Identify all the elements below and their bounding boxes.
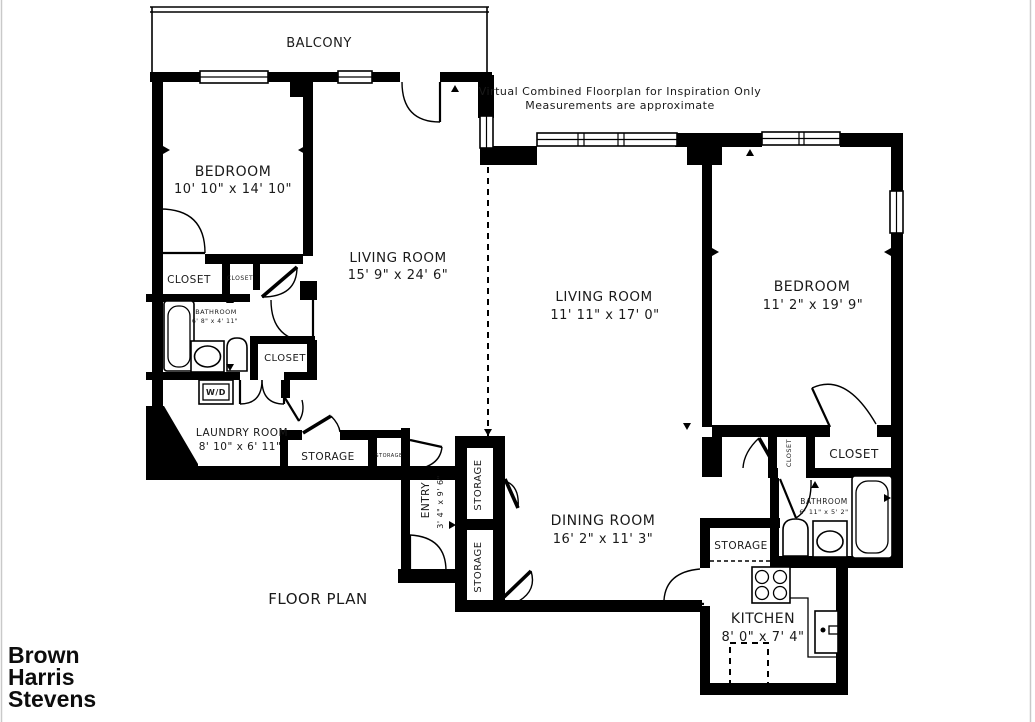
bedroom-left-door — [160, 209, 205, 253]
closet-bedroom-right-small-label: CLOSET — [785, 439, 793, 467]
bathtub-right-icon — [852, 476, 892, 558]
bedroom-right-label: BEDROOM — [774, 279, 851, 295]
laundry-double-door — [240, 380, 284, 404]
bathroom-right-label: BATHROOM — [800, 497, 847, 506]
vestibule-door — [262, 267, 297, 297]
bathroom-left-label: BATHROOM — [195, 308, 237, 316]
bathroom-left-dims: 6' 8" x 4' 11" — [192, 318, 238, 325]
storage-laundry-door — [303, 416, 340, 433]
stove-icon — [752, 567, 790, 603]
disclaimer-line2: Measurements are approximate — [525, 99, 715, 112]
window-living-left — [480, 116, 493, 148]
entry-dims: 3' 4" x 9' 6" — [436, 475, 445, 529]
window-living-right-band — [537, 133, 677, 146]
bedroom-right-dims: 11' 2" x 19' 9" — [763, 298, 863, 313]
floorplan-drawing: BALCONY Virtual Combined Floorplan for I… — [0, 0, 1035, 722]
disclaimer-line1: Virtual Combined Floorplan for Inspirati… — [479, 85, 762, 98]
window-balcony-door-side — [338, 71, 372, 83]
fridge-icon — [815, 611, 839, 653]
balcony-door — [402, 82, 440, 122]
window-bedroom-right-side — [890, 191, 903, 233]
closet-bedroom-right-door — [812, 384, 876, 427]
bathtub-left-icon — [164, 301, 194, 371]
window-bedroom-left — [200, 71, 268, 83]
closet-bedroom-right-big-label: CLOSET — [829, 447, 879, 461]
floorplan-page: BALCONY Virtual Combined Floorplan for I… — [0, 0, 1035, 722]
sink-right-icon — [783, 519, 808, 556]
storage-laundry-small-label: STORAGE — [375, 453, 402, 459]
floor-plan-title: FLOOR PLAN — [268, 590, 367, 608]
laundry-room-label: LAUNDRY ROOM — [196, 427, 288, 439]
kitchen-door — [664, 569, 704, 604]
wd-label: W/D — [206, 388, 226, 397]
living-room-right-label: LIVING ROOM — [555, 289, 652, 305]
toilet-left-icon — [191, 341, 224, 372]
storage-hall-bottom-label: STORAGE — [473, 541, 484, 592]
closet-bedroom-left-big-label: CLOSET — [167, 274, 211, 286]
toilet-right-icon — [813, 521, 847, 557]
storage-hall-top-label: STORAGE — [473, 459, 484, 510]
kitchen-dims: 8' 0" x 7' 4" — [722, 630, 805, 645]
storage-hall-bottom-door — [504, 571, 533, 601]
kitchen-label: KITCHEN — [731, 611, 795, 627]
living-room-left-dims: 15' 9" x 24' 6" — [348, 268, 448, 283]
storage-laundry-label: STORAGE — [301, 451, 354, 463]
laundry-room-dims: 8' 10" x 6' 11" — [199, 441, 282, 453]
window-bedroom-right-top — [762, 132, 840, 145]
dining-room-label: DINING ROOM — [551, 513, 656, 529]
storage-hall-top-door — [505, 479, 518, 508]
front-door — [410, 535, 446, 571]
closet-hall-left-label: CLOSET — [264, 353, 306, 364]
hall-door — [271, 300, 313, 342]
closet-bedroom-left-small-label: CLOSET — [227, 275, 253, 282]
living-room-left-label: LIVING ROOM — [349, 250, 446, 266]
bedroom-left-label: BEDROOM — [195, 164, 272, 180]
logo-line3: Stevens — [8, 686, 96, 712]
storage-kitchen-label: STORAGE — [714, 540, 767, 552]
balcony-label: BALCONY — [286, 36, 352, 51]
laundry-side-door — [285, 398, 303, 421]
dishwasher-dashed — [730, 643, 768, 687]
dining-room-dims: 16' 2" x 11' 3" — [553, 532, 653, 547]
living-room-right-dims: 11' 11" x 17' 0" — [550, 308, 659, 323]
bedroom-left-dims: 10' 10" x 14' 10" — [174, 182, 292, 197]
entry-top-door — [410, 440, 442, 470]
bathroom-right-dims: 6' 11" x 5' 2" — [799, 508, 848, 516]
entry-label: ENTRY — [420, 482, 432, 519]
brokerage-logo: Brown Harris Stevens — [8, 642, 96, 712]
